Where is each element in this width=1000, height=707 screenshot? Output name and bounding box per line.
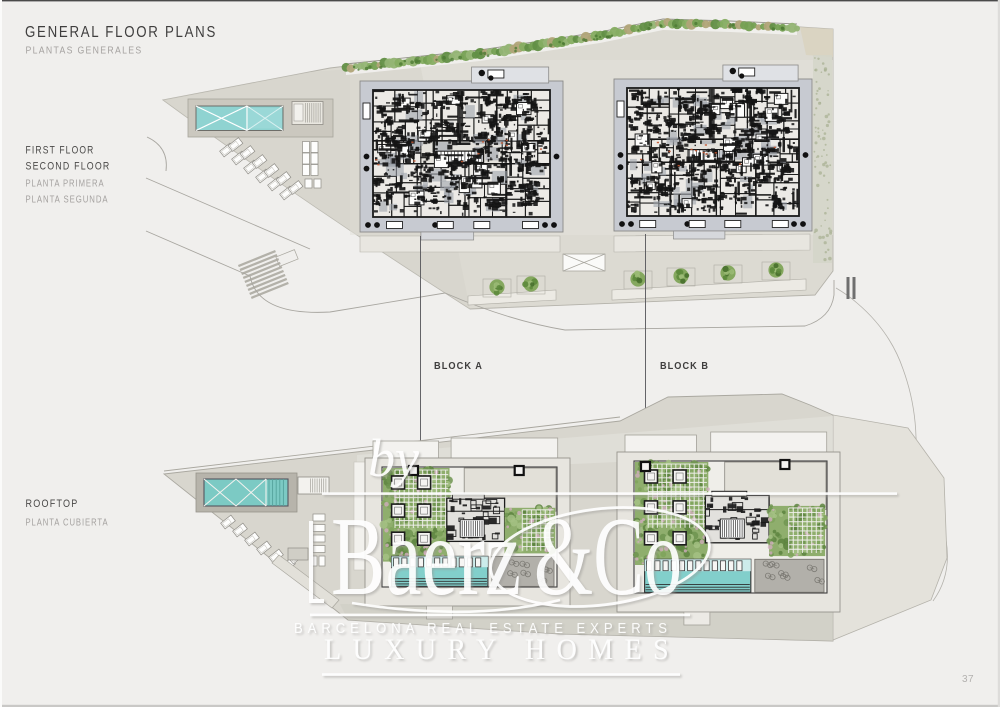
svg-text:PLANTA PRIMERA: PLANTA PRIMERA — [26, 179, 105, 190]
svg-text:FIRST FLOOR: FIRST FLOOR — [26, 145, 95, 157]
svg-text:by: by — [368, 428, 419, 488]
svg-text:ROOFTOP: ROOFTOP — [26, 498, 79, 510]
svg-text:PLANTAS GENERALES: PLANTAS GENERALES — [26, 46, 143, 57]
svg-text:SECOND FLOOR: SECOND FLOOR — [26, 161, 111, 173]
svg-text:BLOCK B: BLOCK B — [660, 360, 709, 372]
svg-text:BLOCK A: BLOCK A — [434, 360, 483, 372]
svg-text:LUXURY HOMES: LUXURY HOMES — [324, 633, 680, 666]
svg-text:GENERAL FLOOR PLANS: GENERAL FLOOR PLANS — [25, 24, 217, 41]
svg-text:PLANTA CUBIERTA: PLANTA CUBIERTA — [26, 518, 109, 529]
svg-text:37: 37 — [962, 674, 974, 685]
svg-text:PLANTA SEGUNDA: PLANTA SEGUNDA — [26, 195, 109, 206]
